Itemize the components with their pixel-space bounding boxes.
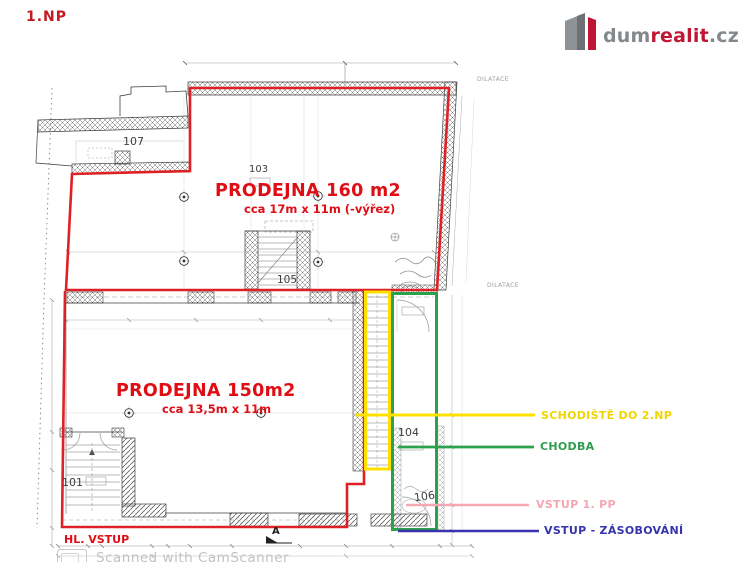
area-upper-title: PRODEJNA 160 m2 — [215, 183, 401, 201]
room-number-105: 105 — [277, 275, 297, 286]
callout-corridor-label: CHODBA — [540, 441, 594, 452]
callout-lines — [355, 415, 539, 531]
floorplan-drawing — [0, 0, 749, 562]
room-number-104: 104 — [398, 427, 419, 438]
property-line — [37, 88, 52, 528]
scan-watermark: Scanned with CamScanner — [96, 550, 289, 562]
expansion-joint-label-top: DILATACE — [477, 77, 509, 83]
staircase-highlight — [366, 292, 390, 469]
area-upper-dims: cca 17m x 11m (-výřez) — [244, 204, 395, 216]
callout-staircase-label: SCHODIŠTĚ DO 2.NP — [541, 410, 672, 421]
room-number-107: 107 — [123, 136, 144, 147]
callout-entrance-supply-label: VSTUP - ZÁSOBOVÁNÍ — [544, 525, 683, 536]
main-entrance-label: HL. VSTUP — [64, 534, 129, 545]
dumrealit-logo: dumrealit.cz — [564, 8, 739, 50]
room-number-103: 103 — [249, 165, 268, 175]
camscanner-logo-icon — [57, 549, 87, 562]
callout-entrance-1pp-label: VSTUP 1. PP — [536, 499, 616, 510]
dumrealit-logo-text: dumrealit.cz — [603, 27, 739, 50]
dimension-lines — [50, 61, 474, 558]
room-number-106: 106 — [413, 490, 435, 504]
expansion-joint-label-bottom: DILATACE — [487, 283, 519, 289]
page-title: 1.NP — [26, 10, 67, 24]
room-number-101: 101 — [62, 477, 83, 488]
area-lower-title: PRODEJNA 150m2 — [116, 383, 296, 401]
floorplan-page: 1.NP dumrealit.cz PRODEJNA 160 m2 cca 17… — [0, 0, 749, 562]
area-lower-dims: cca 13,5m x 11m — [162, 404, 271, 416]
section-marker-letter: A — [272, 527, 280, 537]
wall-hatching — [38, 82, 457, 530]
dumrealit-logo-icon — [564, 8, 598, 50]
section-marker-flag — [266, 536, 292, 543]
